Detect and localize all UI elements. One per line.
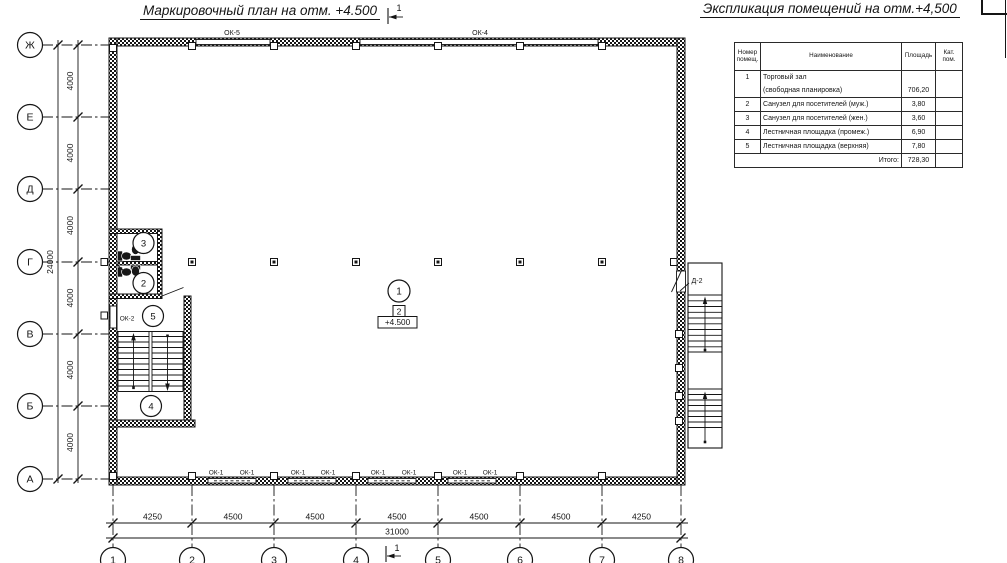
floor-type-number: 2 <box>397 306 402 316</box>
window-ok2 <box>110 306 117 328</box>
section-mark-bottom: 1 <box>386 543 401 562</box>
axis-row-label: Е <box>26 112 33 124</box>
sheet-corner-line <box>981 0 983 13</box>
window-ok5 <box>196 40 270 45</box>
dim-label: 4000 <box>65 360 75 379</box>
schedule-cell: 5 <box>735 140 761 154</box>
drawing-sheet: 4000 4000 4000 4000 4000 4000 24000 4250… <box>0 0 1007 563</box>
sheet-corner-line <box>981 13 1007 16</box>
dim-label: 4250 <box>143 512 162 522</box>
schedule-cell: 2 <box>735 98 761 112</box>
schedule-title: Экспликация помещений на отм.+4,500 <box>700 1 960 18</box>
axis-col-label: 6 <box>517 555 523 563</box>
axis-row-label: В <box>26 329 33 341</box>
dimension-labels: 4000 4000 4000 4000 4000 4000 24000 4250… <box>45 71 651 536</box>
schedule-total-value: 728,30 <box>902 154 936 168</box>
schedule-cell <box>735 84 761 98</box>
schedule-cell: Лестничная площадка (промеж.) <box>761 126 902 140</box>
arrow-up <box>703 392 707 400</box>
table-row: 3 Санузел для посетителей (жен.) 3,60 <box>735 112 963 126</box>
schedule-cell <box>936 154 963 168</box>
window-label: ОК-1 <box>371 470 386 477</box>
dim-label: 4500 <box>470 512 489 522</box>
interior-columns <box>189 259 606 266</box>
dim-total-label: 31000 <box>385 527 409 537</box>
table-row: 5 Лестничная площадка (верхняя) 7,80 <box>735 140 963 154</box>
schedule-cell: (свободная планировка) <box>761 84 902 98</box>
door-d2-opening <box>677 271 686 292</box>
schedule-cell <box>902 71 936 85</box>
window-ok4 <box>360 40 598 45</box>
axis-col-label: 3 <box>271 555 277 563</box>
dim-label: 4000 <box>65 71 75 90</box>
schedule-total-label: Итого: <box>735 154 902 168</box>
schedule-cell <box>936 140 963 154</box>
table-row: (свободная планировка) 706,20 <box>735 84 963 98</box>
schedule-header-row: Номер помещ. Наименование Площадь Кат. п… <box>735 43 963 71</box>
schedule-cell: Лестничная площадка (верхняя) <box>761 140 902 154</box>
room-number: 3 <box>141 238 146 249</box>
window-label: ОК-1 <box>291 470 306 477</box>
axis-row-label: А <box>26 474 33 486</box>
dim-total-label: 24000 <box>45 250 55 274</box>
schedule-cell <box>936 126 963 140</box>
axis-col-label: 4 <box>353 555 359 563</box>
schedule-header-cell: Кат. пом. <box>936 43 963 71</box>
schedule-cell: 1 <box>735 71 761 85</box>
schedule-cell <box>936 84 963 98</box>
schedule-cell: 3,80 <box>902 98 936 112</box>
schedule-cell <box>936 98 963 112</box>
room-number: 2 <box>141 278 146 289</box>
stair-left <box>117 288 184 392</box>
axis-row-label: Г <box>27 257 33 269</box>
axis-row-label: Ж <box>25 40 35 52</box>
window-label: ОК-1 <box>209 470 224 477</box>
schedule-cell: Санузел для посетителей (жен.) <box>761 112 902 126</box>
axis-col-label: 5 <box>435 555 441 563</box>
section-number: 1 <box>394 543 399 553</box>
schedule-cell: 3 <box>735 112 761 126</box>
schedule-header-cell: Номер помещ. <box>735 43 761 71</box>
schedule-cell: Санузел для посетителей (муж.) <box>761 98 902 112</box>
dim-label: 4500 <box>552 512 571 522</box>
dim-label: 4500 <box>306 512 325 522</box>
dim-label: 4250 <box>632 512 651 522</box>
schedule-cell <box>936 112 963 126</box>
opening-labels: ОК-5 ОК-4 ОК-1 ОК-1 ОК-1 ОК-1 ОК-1 ОК-1 … <box>120 30 703 477</box>
room-number: 5 <box>150 311 155 322</box>
dim-label: 4000 <box>65 143 75 162</box>
schedule-cell <box>936 71 963 85</box>
table-row-total: Итого: 728,30 <box>735 154 963 168</box>
section-mark-top: 1 <box>388 3 403 24</box>
window-label: ОК-2 <box>120 316 135 323</box>
schedule-cell: 3,60 <box>902 112 936 126</box>
table-row: 2 Санузел для посетителей (муж.) 3,80 <box>735 98 963 112</box>
schedule-cell: 7,80 <box>902 140 936 154</box>
schedule-cell: 4 <box>735 126 761 140</box>
schedule-cell: 6,90 <box>902 126 936 140</box>
arrow-up <box>703 297 707 305</box>
window-label: ОК-1 <box>240 470 255 477</box>
schedule-cell: Торговый зал <box>761 71 902 85</box>
room-number: 4 <box>148 401 153 412</box>
plan-title: Маркировочный план на отм. +4.500 <box>140 3 380 20</box>
window-label: ОК-1 <box>321 470 336 477</box>
dim-label: 4500 <box>224 512 243 522</box>
dim-label: 4500 <box>388 512 407 522</box>
window-label: ОК-1 <box>483 470 498 477</box>
door-label: Д-2 <box>692 278 703 285</box>
axis-col-label: 1 <box>110 555 116 563</box>
schedule-header-cell: Площадь <box>902 43 936 71</box>
section-number: 1 <box>396 3 401 13</box>
table-row: 1 Торговый зал <box>735 71 963 85</box>
dim-label: 4000 <box>65 288 75 307</box>
schedule-header-cell: Наименование <box>761 43 902 71</box>
table-row: 4 Лестничная площадка (промеж.) 6,90 <box>735 126 963 140</box>
axis-col-label: 2 <box>189 555 195 563</box>
axis-row-label: Б <box>27 401 34 413</box>
room-number: 1 <box>396 287 402 298</box>
dim-label: 4000 <box>65 216 75 235</box>
window-label: ОК-1 <box>453 470 468 477</box>
arrow-down <box>165 384 170 392</box>
elevation-value: +4.500 <box>385 318 411 327</box>
axis-col-label: 8 <box>678 555 684 563</box>
window-label: ОК-5 <box>224 30 240 37</box>
window-label: ОК-4 <box>472 30 488 37</box>
axis-row-label: Д <box>26 184 33 196</box>
room-schedule-table: Номер помещ. Наименование Площадь Кат. п… <box>734 42 963 168</box>
axis-col-label: 7 <box>599 555 605 563</box>
door-leaf <box>162 288 184 297</box>
sheet-corner-line <box>1005 0 1007 58</box>
schedule-cell: 706,20 <box>902 84 936 98</box>
dim-label: 4000 <box>65 433 75 452</box>
window-label: ОК-1 <box>402 470 417 477</box>
